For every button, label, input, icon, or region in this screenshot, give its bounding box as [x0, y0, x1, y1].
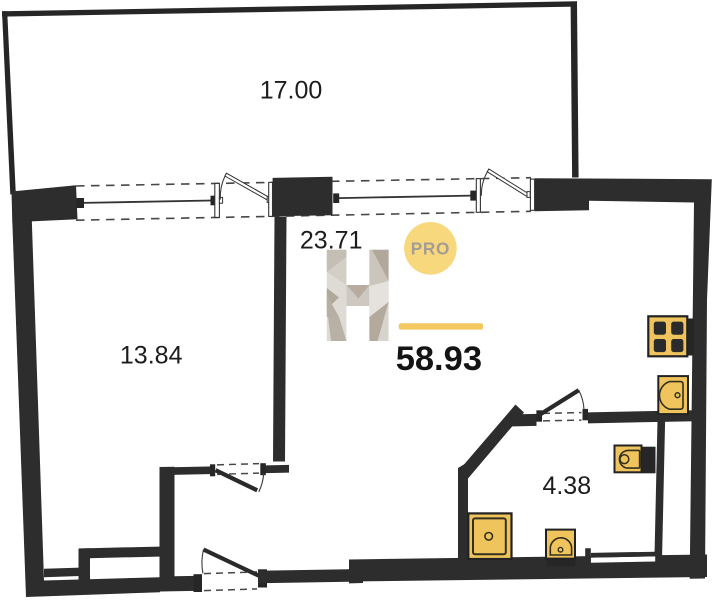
- svg-text:58.93: 58.93: [396, 340, 482, 378]
- svg-text:23.71: 23.71: [300, 227, 363, 255]
- svg-text:PRO: PRO: [411, 239, 450, 259]
- svg-text:13.84: 13.84: [120, 342, 183, 370]
- svg-text:17.00: 17.00: [260, 77, 323, 105]
- svg-text:4.38: 4.38: [542, 472, 591, 500]
